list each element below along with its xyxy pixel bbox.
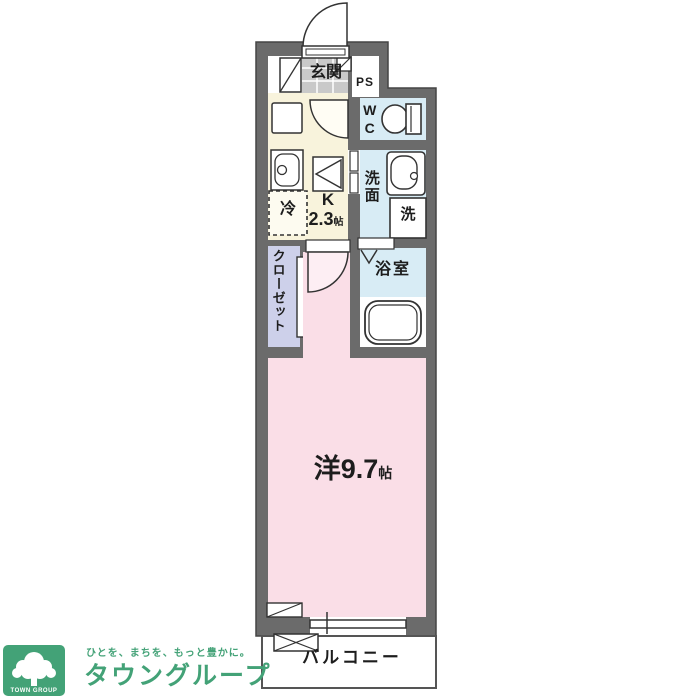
shoe-cabinet [280,58,301,92]
closet-label: クローゼット [271,249,285,345]
main-room-value: 洋9.7 [314,454,379,484]
town-group-logo: TOWN GROUP [3,645,65,696]
toilet-icon [382,104,421,134]
kitchen-counter [272,103,302,133]
main-room-label: 洋9.7帖 [288,455,418,483]
pipe-space-label: PS [351,76,379,89]
washroom-door [348,150,360,194]
bathroom-label: 浴室 [360,262,426,279]
kitchen-size-value: 2.3 [308,209,333,229]
washing-machine-label: 洗 [390,207,426,223]
bathtub-icon [360,297,426,347]
room-cabinet [267,603,302,617]
entrance-label: 玄関 [301,65,351,82]
balcony-label: バルコニー [288,649,416,667]
main-room-unit: 帖 [378,465,392,481]
vanity-sink-icon [387,152,425,195]
brand-name: タウングループ [84,656,272,692]
logo-text: TOWN GROUP [3,688,65,694]
washroom-label: 洗面 [363,170,379,224]
wc-label: WC [362,102,377,140]
kitchen-sink [271,150,303,190]
main-room-floor [268,358,426,617]
kitchen-mark-label: K [313,191,343,209]
kitchen-size-unit: 帖 [334,217,344,228]
floor-plan-drawing [0,0,700,700]
kitchen-unit [313,157,343,191]
entrance-door [302,3,349,58]
floor-plan-page: 玄関 PS WC 洗面 洗 浴室 冷 K 2.3帖 クローゼット 洋9.7帖 バ… [0,0,700,700]
kitchen-size-label: 2.3帖 [299,210,353,229]
